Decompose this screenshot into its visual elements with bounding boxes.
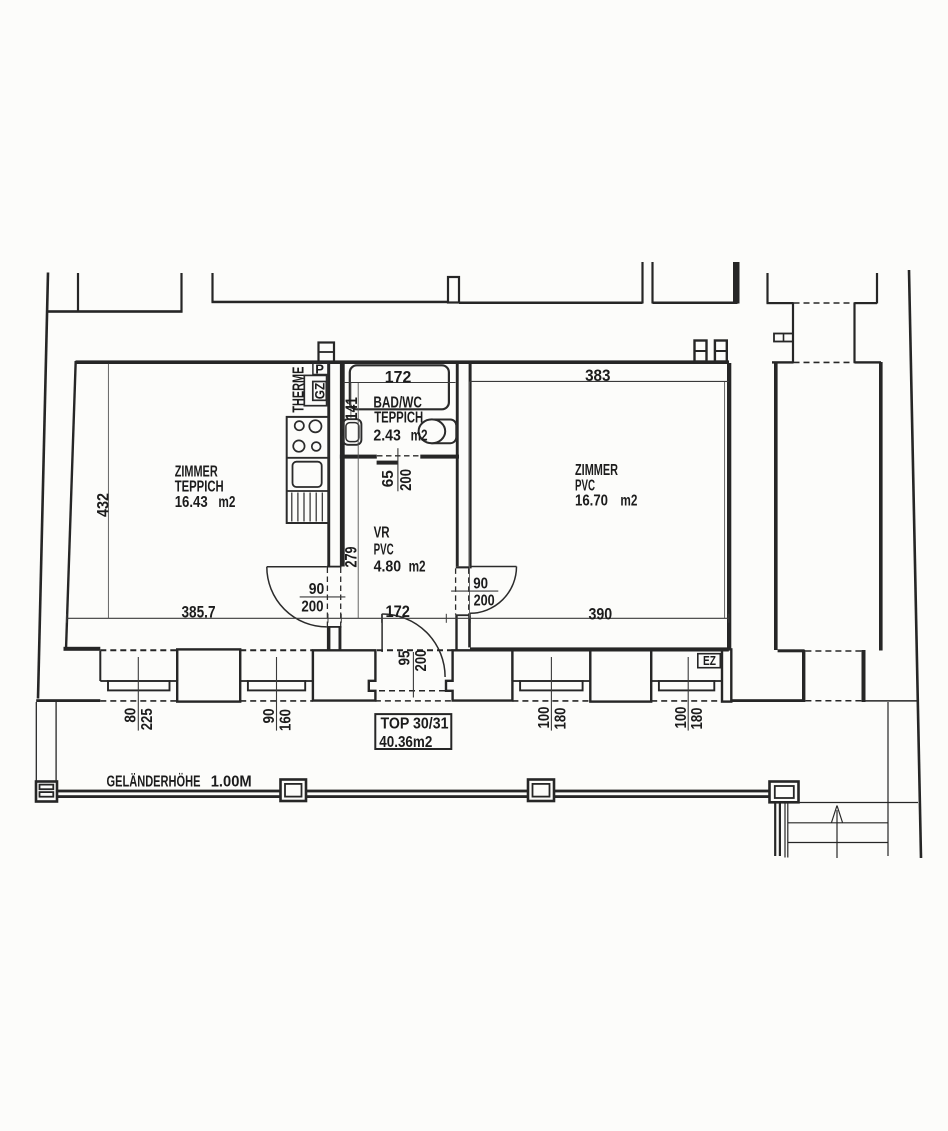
svg-text:385.7: 385.7	[182, 604, 216, 622]
svg-text:THERME: THERME	[290, 366, 307, 412]
svg-text:m2: m2	[409, 558, 426, 575]
svg-text:180: 180	[689, 708, 706, 730]
svg-text:16.43: 16.43	[175, 494, 208, 511]
svg-text:2.43: 2.43	[373, 427, 401, 444]
svg-text:80: 80	[123, 708, 140, 723]
svg-text:200: 200	[301, 598, 323, 615]
svg-text:383: 383	[585, 367, 610, 385]
svg-text:65: 65	[380, 470, 397, 487]
svg-text:172: 172	[386, 603, 410, 621]
svg-text:225: 225	[139, 708, 156, 730]
svg-text:TOP 30/31: TOP 30/31	[381, 716, 449, 733]
svg-text:160: 160	[277, 709, 294, 731]
svg-text:200: 200	[413, 650, 430, 672]
svg-text:m2: m2	[620, 493, 637, 510]
svg-text:279: 279	[341, 547, 360, 568]
svg-text:GELÄNDERHÖHE: GELÄNDERHÖHE	[107, 773, 201, 790]
svg-text:P: P	[315, 362, 324, 377]
svg-text:EZ: EZ	[703, 653, 716, 668]
svg-text:100: 100	[536, 707, 553, 729]
svg-text:90: 90	[261, 709, 278, 724]
svg-text:141: 141	[342, 397, 361, 420]
svg-text:m2: m2	[218, 494, 235, 511]
svg-text:4.80: 4.80	[374, 558, 402, 575]
svg-text:180: 180	[552, 708, 569, 730]
svg-text:172: 172	[385, 368, 412, 386]
svg-text:390: 390	[589, 606, 613, 624]
svg-text:VR: VR	[374, 525, 390, 542]
svg-text:40.36m2: 40.36m2	[379, 734, 432, 751]
svg-text:TEPPICH: TEPPICH	[374, 410, 423, 427]
svg-text:PVC: PVC	[374, 541, 394, 558]
svg-text:16.70: 16.70	[575, 493, 608, 510]
svg-text:m2: m2	[411, 427, 428, 444]
svg-text:200: 200	[474, 593, 495, 610]
svg-text:90: 90	[473, 575, 488, 592]
svg-text:100: 100	[673, 707, 690, 729]
svg-text:GZ: GZ	[313, 383, 328, 400]
svg-text:432: 432	[94, 493, 113, 517]
svg-text:1.00M: 1.00M	[211, 773, 252, 790]
svg-text:95: 95	[397, 650, 414, 665]
svg-text:90: 90	[309, 581, 325, 598]
svg-text:TEPPICH: TEPPICH	[175, 479, 224, 496]
svg-text:200: 200	[398, 469, 415, 491]
